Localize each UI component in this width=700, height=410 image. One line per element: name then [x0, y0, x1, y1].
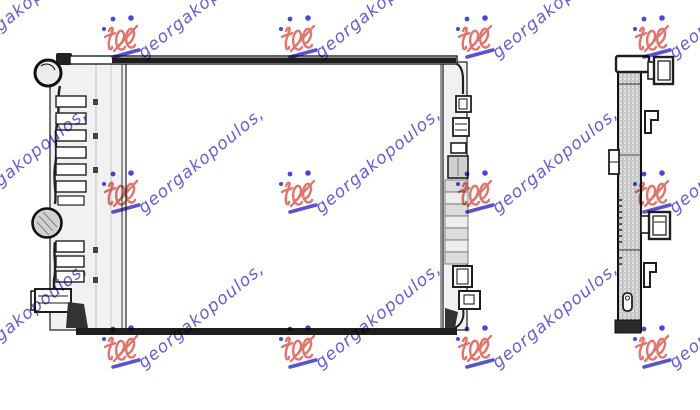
radiator-product-image: georgakopoulos, georgakopoulos, georgako… [0, 0, 700, 410]
radiator-side-view [609, 56, 673, 333]
front-right-tank [443, 62, 480, 330]
front-top-bar [70, 56, 457, 64]
side-bottom-foot [615, 320, 641, 333]
side-hook-bracket-1 [645, 111, 658, 133]
side-hook-bracket-2 [644, 263, 656, 287]
right-bracket-2 [453, 118, 469, 136]
front-left-tank [31, 53, 126, 330]
front-core [122, 62, 445, 330]
radiator-front-view [31, 53, 480, 335]
right-stub [451, 143, 466, 153]
left-lower-bracket [31, 289, 71, 312]
right-tank-ribs [445, 180, 468, 264]
front-bottom-bar [76, 328, 457, 335]
radiator-drawing [0, 0, 700, 410]
side-body [618, 57, 641, 331]
side-top-cap [616, 56, 649, 72]
